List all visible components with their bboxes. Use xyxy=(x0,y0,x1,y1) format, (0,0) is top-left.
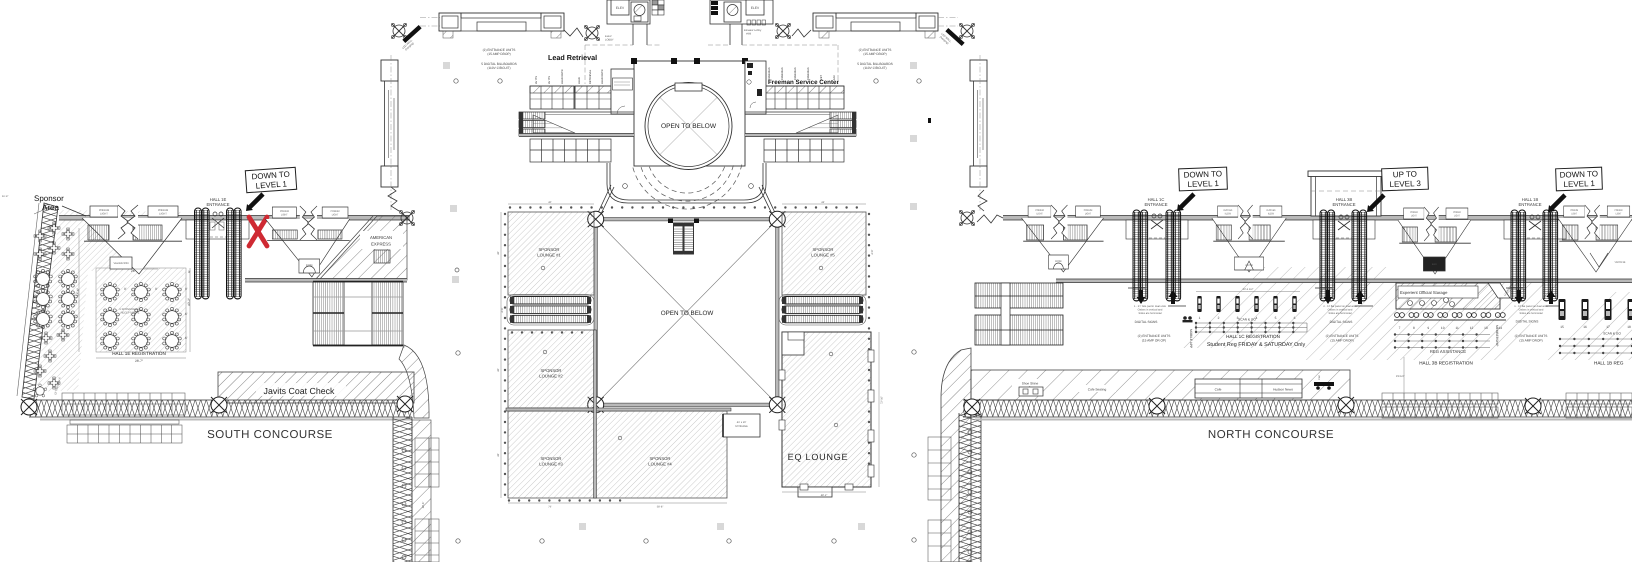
svg-text:43': 43' xyxy=(821,201,825,204)
svg-text:DIGITAL SIGNS: DIGITAL SIGNS xyxy=(1330,320,1353,324)
svg-text:ENTRANCE: ENTRANCE xyxy=(206,202,229,207)
svg-text:Sides are horizontal: Sides are horizontal xyxy=(1329,312,1352,315)
svg-text:9': 9' xyxy=(155,287,158,291)
svg-text:4'-6": 4'-6" xyxy=(871,249,874,254)
svg-text:UP TO: UP TO xyxy=(1393,170,1417,180)
svg-text:LOUNGE #4: LOUNGE #4 xyxy=(648,462,672,467)
svg-text:15: 15 xyxy=(1560,325,1564,329)
svg-text:Sides are horizontal: Sides are horizontal xyxy=(1520,312,1543,315)
svg-text:(2) ENTRANCE UNITS: (2) ENTRANCE UNITS xyxy=(1138,334,1171,338)
svg-text:LIGHT: LIGHT xyxy=(1454,215,1460,218)
svg-text:6': 6' xyxy=(185,336,188,340)
svg-text:LIGHT: LIGHT xyxy=(1571,213,1577,216)
svg-text:41' x 20': 41' x 20' xyxy=(737,421,747,424)
svg-text:#9/8: #9/8 xyxy=(746,32,752,35)
svg-text:REG ASSISTANCE: REG ASSISTANCE xyxy=(1430,349,1466,354)
svg-text:SOUTH CONCOURSE: SOUTH CONCOURSE xyxy=(207,429,333,441)
svg-text:STORAGE: STORAGE xyxy=(735,425,748,428)
svg-text:11'-4": 11'-4" xyxy=(2,195,8,198)
svg-text:MOBILE APP: MOBILE APP xyxy=(1189,329,1193,348)
svg-text:SPONSOR: SPONSOR xyxy=(539,247,560,252)
svg-text:10: 10 xyxy=(1441,326,1445,330)
svg-text:ELEV: ELEV xyxy=(1432,263,1437,266)
svg-text:45': 45' xyxy=(497,453,500,457)
svg-text:55'-6": 55'-6" xyxy=(76,288,80,296)
svg-text:LIGHT: LIGHT xyxy=(281,214,288,217)
svg-text:RETRIEVAL: RETRIEVAL xyxy=(589,69,592,84)
svg-text:OPEN TO BELOW: OPEN TO BELOW xyxy=(661,310,714,317)
svg-text:Javits Coat Check: Javits Coat Check xyxy=(264,386,335,396)
svg-text:Sponsor: Sponsor xyxy=(34,194,64,203)
svg-text:SPONSOR: SPONSOR xyxy=(541,368,562,373)
svg-text:LOUNGE #2: LOUNGE #2 xyxy=(539,374,563,379)
svg-text:72'-10": 72'-10" xyxy=(881,396,884,404)
svg-text:Cafe: Cafe xyxy=(1215,388,1222,392)
svg-text:Hudson News: Hudson News xyxy=(1273,388,1293,392)
svg-text:Student Reg FRIDAY & SATURDAY: Student Reg FRIDAY & SATURDAY Only xyxy=(1207,342,1306,348)
svg-text:9': 9' xyxy=(124,287,127,291)
svg-text:5: 5 xyxy=(1275,316,1277,320)
svg-text:40': 40' xyxy=(497,251,500,255)
svg-text:KIOSK: KIOSK xyxy=(306,264,313,267)
svg-text:ELEV: ELEV xyxy=(751,6,760,10)
svg-text:30'-6 1/2": 30'-6 1/2" xyxy=(1243,288,1254,291)
svg-text:40': 40' xyxy=(497,368,500,372)
svg-text:Cafe Seating: Cafe Seating xyxy=(1088,388,1107,392)
svg-text:(110V CIRCUIT): (110V CIRCUIT) xyxy=(487,66,510,70)
svg-text:ENTRANCE: ENTRANCE xyxy=(1144,202,1167,207)
svg-text:11: 11 xyxy=(1455,326,1459,330)
svg-text:26': 26' xyxy=(131,269,136,273)
svg-text:HALL 3B REGISTRATION: HALL 3B REGISTRATION xyxy=(1419,361,1473,366)
svg-text:HALL 1C REGISTRATION: HALL 1C REGISTRATION xyxy=(1226,334,1280,339)
svg-text:DIGITAL SIGNS: DIGITAL SIGNS xyxy=(1135,320,1158,324)
svg-text:KLERK: KLERK xyxy=(1268,213,1274,216)
svg-text:LIGHT: LIGHT xyxy=(100,213,108,216)
svg-text:DIGITAL SIGNS: DIGITAL SIGNS xyxy=(1516,320,1539,324)
svg-text:RECEPTION #1: RECEPTION #1 xyxy=(121,311,140,314)
svg-text:13: 13 xyxy=(1484,326,1488,330)
svg-text:8: 8 xyxy=(1413,326,1415,330)
svg-text:EXPRESS: EXPRESS xyxy=(371,242,391,247)
svg-text:(15 AMP DROP): (15 AMP DROP) xyxy=(1330,339,1353,343)
svg-text:18: 18 xyxy=(1627,325,1631,329)
svg-text:MEMBERSHIP: MEMBERSHIP xyxy=(1495,325,1499,346)
svg-text:6: 6 xyxy=(1294,316,1296,320)
svg-text:SCAN & GO: SCAN & GO xyxy=(1603,332,1621,336)
svg-text:28'-7": 28'-7" xyxy=(135,359,143,363)
svg-text:40': 40' xyxy=(548,201,552,204)
svg-text:AV ITS: AV ITS xyxy=(535,76,538,84)
svg-text:6': 6' xyxy=(185,312,188,316)
svg-text:SPONSOR: SPONSOR xyxy=(541,456,562,461)
svg-text:Freeman Service Center: Freeman Service Center xyxy=(768,79,839,86)
svg-text:NORTH CONCOURSE: NORTH CONCOURSE xyxy=(1208,429,1334,441)
svg-text:LEVEL 1: LEVEL 1 xyxy=(1187,179,1219,189)
svg-text:VISITOR: VISITOR xyxy=(1245,264,1253,267)
svg-text:LOUNGE #1: LOUNGE #1 xyxy=(537,253,561,258)
svg-text:LOBBY: LOBBY xyxy=(605,39,614,42)
svg-text:58'-8": 58'-8" xyxy=(657,506,664,509)
svg-text:9': 9' xyxy=(185,287,188,291)
svg-text:(15 AMP DROP): (15 AMP DROP) xyxy=(863,52,886,56)
svg-text:LIGHT: LIGHT xyxy=(1036,213,1043,216)
svg-text:AV ITS: AV ITS xyxy=(548,76,551,84)
svg-text:12: 12 xyxy=(1470,326,1474,330)
svg-text:Shoe Shine: Shoe Shine xyxy=(1022,382,1039,386)
svg-text:76': 76' xyxy=(548,506,552,509)
svg-text:KIOSK: KIOSK xyxy=(1055,260,1062,263)
svg-text:17: 17 xyxy=(1606,325,1610,329)
svg-text:ELEV: ELEV xyxy=(616,6,625,10)
svg-text:SPONSOR: SPONSOR xyxy=(650,456,671,461)
svg-text:48'-2": 48'-2" xyxy=(821,494,828,497)
svg-text:16: 16 xyxy=(1583,325,1587,329)
svg-text:HALL 1B REG: HALL 1B REG xyxy=(1594,361,1624,366)
svg-text:Area: Area xyxy=(42,203,59,212)
svg-text:9: 9 xyxy=(1427,326,1429,330)
svg-text:EQ LOUNGE: EQ LOUNGE xyxy=(788,452,849,462)
svg-text:(15 AMP OR OP): (15 AMP OR OP) xyxy=(1142,339,1166,343)
svg-text:LIGHT: LIGHT xyxy=(159,213,167,216)
svg-text:KLERK: KLERK xyxy=(1225,213,1231,216)
svg-text:VISITOR 3B: VISITOR 3B xyxy=(1615,261,1626,264)
svg-text:2: 2 xyxy=(1218,316,1220,320)
svg-text:(110V CIRCUIT): (110V CIRCUIT) xyxy=(863,66,886,70)
svg-text:LIGHT: LIGHT xyxy=(1085,213,1092,216)
svg-text:(15 AMP DROP): (15 AMP DROP) xyxy=(1519,339,1542,343)
svg-text:4: 4 xyxy=(1256,316,1258,320)
svg-text:LEAD: LEAD xyxy=(578,77,581,84)
svg-text:LEAD RETR.: LEAD RETR. xyxy=(601,68,604,84)
svg-text:4'-6": 4'-6" xyxy=(501,307,504,312)
svg-text:(15 AMP DROP): (15 AMP DROP) xyxy=(487,52,510,56)
svg-text:LOUNGE #5: LOUNGE #5 xyxy=(811,253,835,258)
svg-text:SCAN & GO: SCAN & GO xyxy=(1238,318,1256,322)
svg-text:ENTRANCE: ENTRANCE xyxy=(1518,202,1541,207)
svg-text:SPONSOR: SPONSOR xyxy=(813,247,834,252)
svg-text:1: 1 xyxy=(1199,316,1201,320)
svg-text:Cart: Cart xyxy=(1318,375,1321,380)
svg-text:(2) ENTRANCE UNITS: (2) ENTRANCE UNITS xyxy=(1515,334,1548,338)
svg-text:AMERICAN: AMERICAN xyxy=(370,235,392,240)
svg-text:LOUNGE #3: LOUNGE #3 xyxy=(539,462,563,467)
svg-text:OPEN TO BELOW: OPEN TO BELOW xyxy=(661,123,717,130)
svg-text:Sides are horizontal: Sides are horizontal xyxy=(1139,312,1162,315)
svg-text:LIGHT: LIGHT xyxy=(332,214,339,217)
svg-text:VALIDATION: VALIDATION xyxy=(113,262,128,265)
svg-text:ENTRANCE: ENTRANCE xyxy=(1332,202,1355,207)
svg-text:8'8 1/2": 8'8 1/2" xyxy=(1396,375,1405,378)
svg-text:7: 7 xyxy=(1399,326,1401,330)
svg-text:LIGHT: LIGHT xyxy=(1616,213,1622,216)
svg-text:Experient Official Storage: Experient Official Storage xyxy=(1400,290,1448,295)
svg-text:(2) ENTRANCE UNITS: (2) ENTRANCE UNITS xyxy=(1326,334,1359,338)
svg-text:3': 3' xyxy=(188,270,191,274)
svg-text:28'-6": 28'-6" xyxy=(422,502,425,509)
svg-text:LIGHT: LIGHT xyxy=(1411,215,1417,218)
svg-text:LEVEL 3: LEVEL 3 xyxy=(1389,179,1421,189)
svg-text:40'-2": 40'-2" xyxy=(187,298,191,306)
svg-text:Lead Retrieval: Lead Retrieval xyxy=(548,53,597,62)
svg-text:LEVEL 1: LEVEL 1 xyxy=(1563,179,1595,189)
svg-text:LEAD RETR.: LEAD RETR. xyxy=(561,68,564,84)
svg-text:HALL 1E REGISTRATION: HALL 1E REGISTRATION xyxy=(112,351,166,356)
